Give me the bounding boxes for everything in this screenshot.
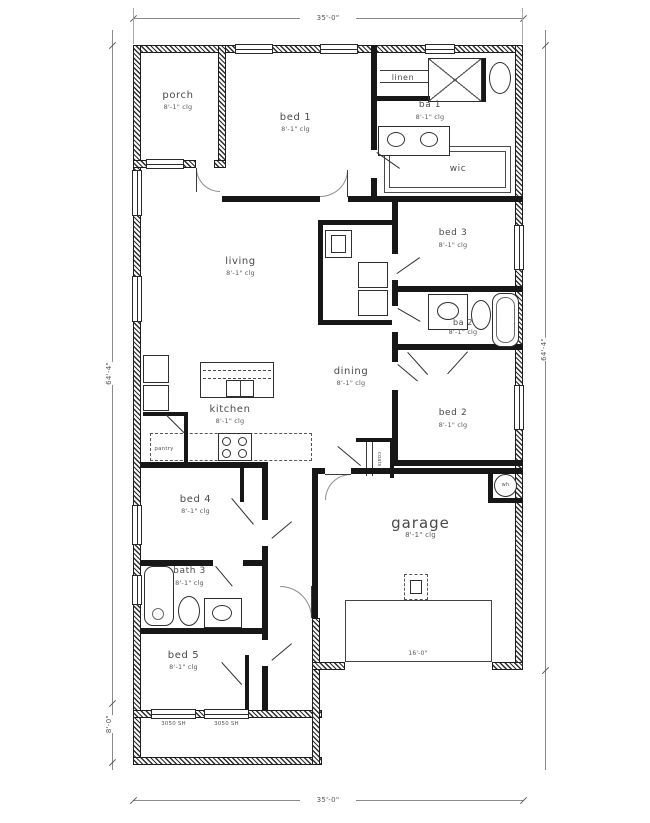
room-name: bed 5 <box>168 650 199 661</box>
dim-tick <box>520 797 527 804</box>
sink-icon <box>420 132 438 147</box>
bed2-door <box>397 364 418 382</box>
toilet-icon <box>489 62 511 94</box>
burner-icon <box>238 437 247 446</box>
wh-closet-wall-h <box>488 498 523 503</box>
exterior-wall-left <box>133 45 141 765</box>
wall-utility-bottom <box>318 320 392 325</box>
wall-ba1-toilet-divider <box>482 58 486 102</box>
ceiling-height: 8'-1" clg <box>400 112 460 123</box>
room-name: linen <box>392 73 415 82</box>
kitchen-sink-divider <box>240 381 241 396</box>
bathtub-inner <box>496 297 515 343</box>
room-label-living: living 8'-1" clg <box>198 256 283 279</box>
wall-ba2-west-upper <box>392 292 398 306</box>
ceiling-height: 8'-1" clg <box>315 378 387 389</box>
room-label-porch: porch 8'-1" clg <box>138 90 218 113</box>
room-label-bed4: bed 4 8'-1" clg <box>158 494 233 517</box>
window-living-upper <box>132 170 142 216</box>
wall-bed2-bottom <box>398 460 523 466</box>
dim-left-main-label: 64'-4" <box>103 362 115 385</box>
ceiling-height: 8'-1" clg <box>152 578 227 589</box>
burner-icon <box>222 449 231 458</box>
dim-right-label: 64'-4" <box>538 338 550 361</box>
bed1-door <box>320 170 348 197</box>
linen-shelf-line <box>380 70 428 71</box>
wall-bed2-west-upper <box>392 350 398 362</box>
bed4-closet-door <box>231 498 254 525</box>
door-leaf <box>325 474 351 475</box>
bed3-door <box>396 257 420 274</box>
wall-pantry-east <box>184 412 188 464</box>
wall-coats-top <box>356 438 394 442</box>
porch-entry-door <box>196 168 220 192</box>
floor-plan: 35'-0" 35'-0" 64'-4" 8'-0" 64'-4" 3050 S… <box>0 0 650 823</box>
room-label-bed5: bed 5 8'-1" clg <box>146 650 221 673</box>
ceiling-height: 8'-1" clg <box>198 268 283 279</box>
tub-drain <box>152 608 164 620</box>
door-leaf <box>196 168 197 192</box>
dim-ext-line <box>133 8 134 44</box>
bed2-closet-door <box>447 351 468 374</box>
dim-left-porch-label: 8'-0" <box>103 715 115 733</box>
dim-top-label: 35'-0" <box>300 13 356 23</box>
window-bed2 <box>514 385 524 430</box>
ceiling-height: 8'-1" clg <box>248 124 343 135</box>
room-name: porch <box>162 90 193 101</box>
wall-hall-west-1 <box>262 468 268 520</box>
room-name: bed 2 <box>439 408 468 418</box>
window-bed4 <box>132 505 142 545</box>
ceiling-height: 8'-1" clg <box>190 416 270 427</box>
ceiling-height: 8'-1" clg <box>158 506 233 517</box>
ceiling-height: 8'-1" clg <box>138 102 218 113</box>
water-heater-label: wh <box>494 482 517 488</box>
garage-house-door <box>325 474 351 500</box>
window-ba1 <box>425 44 455 54</box>
island-counter-line <box>203 378 271 379</box>
room-name: bed 3 <box>439 228 468 238</box>
room-label-coats: coats <box>376 446 382 472</box>
shower-icon <box>428 58 482 102</box>
wall-wic-bottom <box>377 196 523 202</box>
room-label-bath3: bath 3 8'-1" clg <box>152 566 227 589</box>
room-name: living <box>225 256 256 267</box>
kitchen-cabinet <box>143 385 169 411</box>
room-name: bath 3 <box>173 566 206 576</box>
bed4-door <box>271 521 292 539</box>
exterior-wall-porch-east <box>312 618 320 765</box>
coats-door <box>337 446 361 466</box>
door-leaf <box>311 586 312 618</box>
wall-bed3-bottom <box>398 286 523 292</box>
room-label-pantry: pantry <box>146 446 182 452</box>
room-label-wic: wic <box>428 164 488 175</box>
room-label-bed3: bed 3 8'-1" clg <box>418 228 488 251</box>
dim-line-right <box>545 30 546 770</box>
door-leaf <box>347 170 348 197</box>
ceiling-height: 8'-1" clg <box>420 420 486 431</box>
window-bed1-right <box>320 44 358 54</box>
window-bed5-left <box>151 709 196 719</box>
attic-access-inner <box>410 580 422 594</box>
dryer-icon <box>358 290 388 316</box>
garage-door-label: 16'-0" <box>392 650 444 657</box>
bed5-closet-door <box>221 662 242 685</box>
sink-icon <box>212 605 232 621</box>
window-bed1-left <box>235 44 273 54</box>
room-label-linen: linen <box>380 72 426 83</box>
burner-icon <box>238 449 247 458</box>
window-bed5-right-label: 3050 SH <box>204 721 249 727</box>
fridge-icon <box>143 355 169 383</box>
porch-east-wall <box>218 45 226 168</box>
room-name: ba 1 <box>419 100 441 110</box>
room-label-ba1: ba 1 8'-1" clg <box>400 100 460 123</box>
room-label-garage: garage 8'-1" clg <box>368 518 473 541</box>
window-living-lower <box>132 276 142 322</box>
burner-icon <box>222 437 231 446</box>
wh-closet-wall-v <box>488 468 493 502</box>
window-bed5-right <box>204 709 249 719</box>
dim-ext-line <box>522 8 523 44</box>
room-name: bed 4 <box>180 494 211 505</box>
sink-icon <box>387 132 405 147</box>
wall-bed4-top <box>141 462 268 468</box>
garage-wall-bottom-left <box>312 662 345 670</box>
bed4-closet-wall <box>240 468 244 502</box>
ceiling-height: 8'-1" clg <box>432 328 494 337</box>
wall-bath3-top-stub <box>243 560 268 566</box>
room-label-kitchen: kitchen 8'-1" clg <box>190 404 270 427</box>
window-bed5-left-label: 3050 SH <box>151 721 196 727</box>
wall-utility-west <box>318 220 323 325</box>
window-bed3 <box>514 225 524 270</box>
ceiling-height: 8'-1" clg <box>368 530 473 541</box>
window-bath3 <box>132 575 142 605</box>
front-entry-door <box>280 586 312 618</box>
wall-garage-west <box>312 468 318 618</box>
room-name: wic <box>450 164 467 174</box>
porch-south-wall-stub <box>214 160 226 168</box>
wall-bed3-west-upper <box>392 202 398 254</box>
wall-utility-top <box>318 220 392 225</box>
room-label-ba2: ba 2 8'-1" clg <box>432 318 494 337</box>
bed5-door <box>271 643 292 661</box>
window-porch <box>146 159 184 169</box>
room-name: kitchen <box>209 404 250 415</box>
wall-bed1-bottom-left <box>222 196 320 202</box>
room-label-bed2: bed 2 8'-1" clg <box>420 408 486 431</box>
toilet-icon <box>178 596 200 626</box>
bed5-closet-wall <box>245 655 249 710</box>
room-name: ba 2 <box>453 318 473 327</box>
island-counter-line <box>203 370 271 371</box>
pantry-door <box>165 414 184 433</box>
exterior-wall-right <box>515 45 523 670</box>
washer-icon <box>358 262 388 288</box>
ceiling-height: 8'-1" clg <box>418 240 488 251</box>
dim-line-left <box>112 30 113 770</box>
ba2-door <box>397 308 420 322</box>
dim-bottom-label: 35'-0" <box>300 795 356 805</box>
bed2-closet-door <box>407 352 428 375</box>
wall-bath3-bottom <box>141 628 268 634</box>
room-label-bed1: bed 1 8'-1" clg <box>248 112 343 135</box>
garage-wall-bottom-right <box>492 662 523 670</box>
wall-hall-west-3 <box>262 666 268 710</box>
room-label-dining: dining 8'-1" clg <box>315 366 387 389</box>
utility-cabinet-inner <box>331 235 346 253</box>
exterior-wall-porch-bottom <box>133 757 322 765</box>
room-name: dining <box>334 366 369 377</box>
room-name: bed 1 <box>280 112 311 123</box>
ceiling-height: 8'-1" clg <box>146 662 221 673</box>
